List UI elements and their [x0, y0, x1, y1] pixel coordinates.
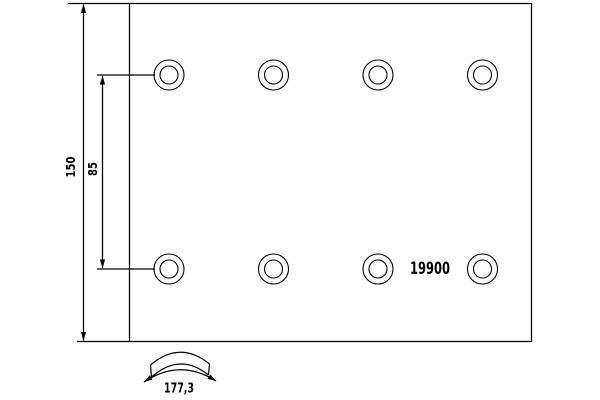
rivet-hole — [363, 60, 393, 90]
rivet-hole — [363, 254, 393, 284]
rivet-hole — [154, 60, 184, 90]
arc-outer-curve — [151, 352, 210, 365]
rivet-holes-top-row — [154, 60, 498, 90]
rivet-hole — [468, 60, 498, 90]
rivet-hole — [259, 60, 289, 90]
rivet-hole — [259, 254, 289, 284]
arc-section-symbol — [144, 352, 216, 382]
rivet-hole — [154, 254, 184, 284]
row-spacing-dimension-label: 85 — [85, 162, 100, 176]
arc-width-label: 177,3 — [164, 381, 194, 397]
arc-inner-curve — [152, 364, 209, 377]
brake-lining-drawing: 150 85 19900 177,3 — [0, 0, 600, 400]
part-number-label: 19900 — [410, 259, 450, 279]
lining-plate-outline — [130, 4, 532, 342]
arc-right-cap — [209, 364, 210, 375]
arc-left-cap — [151, 365, 152, 377]
height-dimension-label: 150 — [63, 156, 78, 177]
rivet-hole — [468, 254, 498, 284]
drawing-canvas: 150 85 19900 177,3 — [0, 0, 600, 400]
